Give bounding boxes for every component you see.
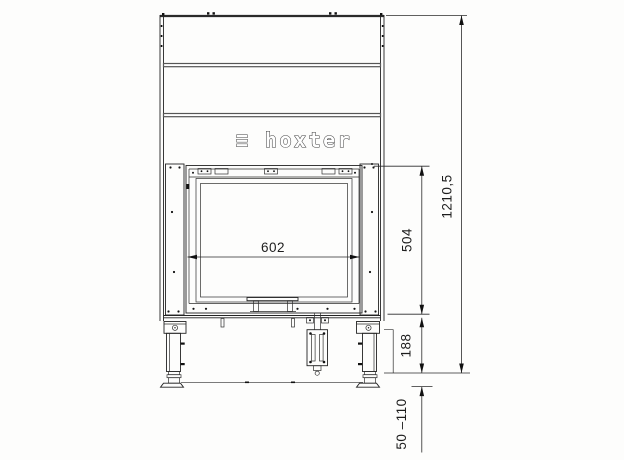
top-edge-marks [161,12,384,47]
dimension-base-height: 188 [399,318,425,373]
dim-base-height-label: 188 [399,333,414,357]
base-frame [161,313,394,387]
dimension-glass-width: 602 [188,240,360,259]
center-air-connector [307,313,329,375]
dim-firebox-height-label: 504 [400,228,415,252]
drawing-canvas: ≡ hoxter [0,0,624,460]
dimension-total-height: 1210,5 [384,16,470,374]
dim-glass-width-label: 602 [261,240,285,255]
left-leg [161,322,187,388]
dimension-firebox-height: 504 [371,163,430,314]
door-latch-mark [187,184,190,189]
left-foot-plate [161,383,184,387]
bottom-rail-screws [192,308,355,310]
base-slot-left [221,319,224,328]
right-foot-plate [357,383,380,387]
technical-drawing: ≡ hoxter [0,0,624,460]
right-leg [357,322,380,388]
brand-logo: ≡ hoxter [236,128,352,152]
dim-foot-range-label: 50 –110 [394,398,409,449]
fireplace-body: ≡ hoxter [160,12,384,321]
dimension-foot-range: 50 –110 [394,387,433,453]
hood-bands [164,64,381,117]
dim-total-height-label: 1210,5 [440,174,455,218]
base-slot-right [292,319,295,328]
door-handle [247,298,298,312]
rear-panel-right [384,330,393,373]
